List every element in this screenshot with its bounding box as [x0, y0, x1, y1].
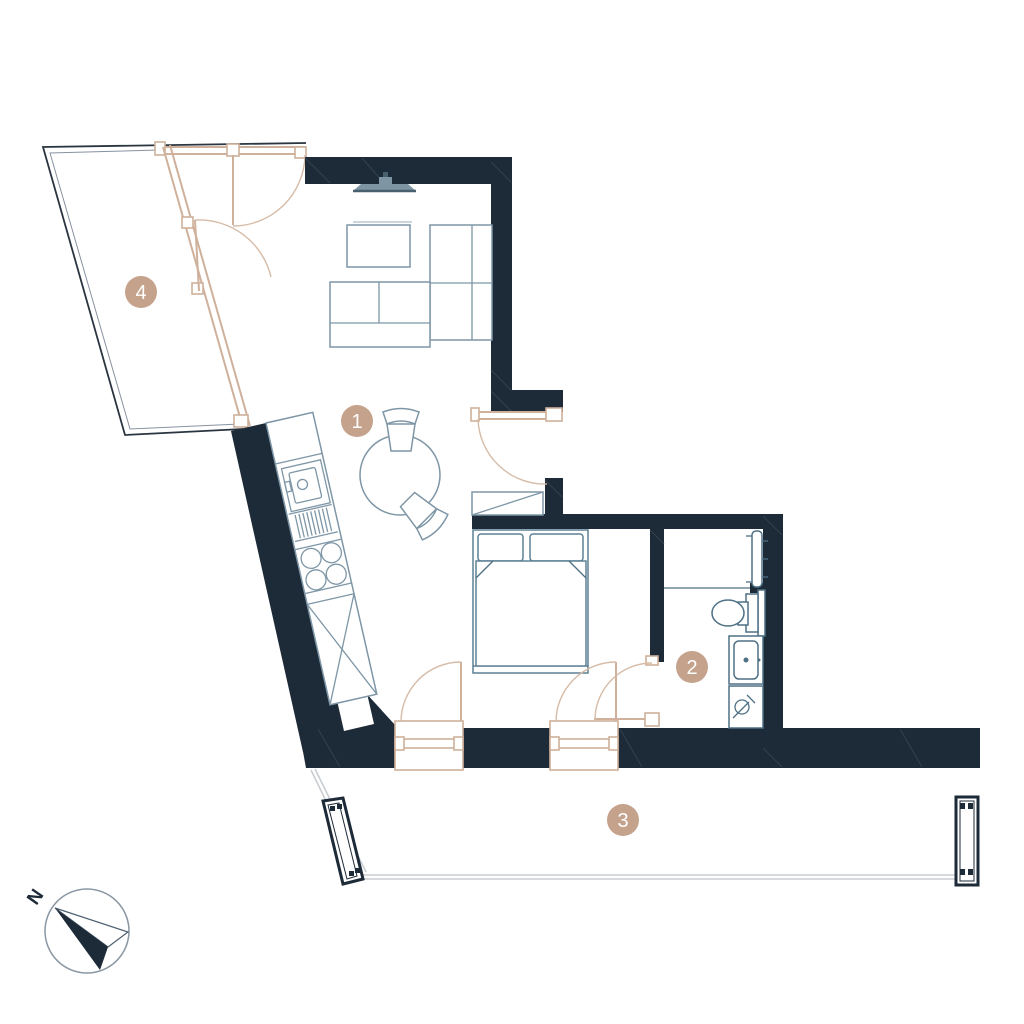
- room-marker-2-label: 2: [686, 657, 697, 679]
- terrace-column-right: [956, 797, 978, 885]
- wall-top: [305, 157, 512, 184]
- wall-entry-stub: [545, 478, 563, 516]
- pillow-right: [530, 534, 583, 561]
- room-marker-4-label: 4: [135, 282, 146, 304]
- room-marker-3-label: 3: [617, 810, 628, 832]
- room-marker-4: 4: [125, 276, 157, 308]
- double-bed: [473, 530, 588, 673]
- room-marker-1-label: 1: [351, 411, 362, 433]
- washbasin-vanity: [729, 636, 763, 684]
- washing-machine: [729, 686, 763, 728]
- room-marker-3: 3: [607, 804, 639, 836]
- blanket: [476, 561, 586, 666]
- wall-bedroom-top: [472, 514, 783, 529]
- coffee-table: [347, 225, 410, 267]
- wardrobe: [472, 492, 543, 515]
- room-marker-2: 2: [676, 651, 708, 683]
- wall-bottom-right: [618, 728, 980, 768]
- wall-bottom-mid: [463, 728, 550, 768]
- floor-plan: 1 2 3 4 N: [0, 0, 1024, 1024]
- wall-bed-bath-divider: [650, 529, 664, 662]
- pillow-left: [478, 534, 523, 561]
- room-marker-1: 1: [341, 405, 373, 437]
